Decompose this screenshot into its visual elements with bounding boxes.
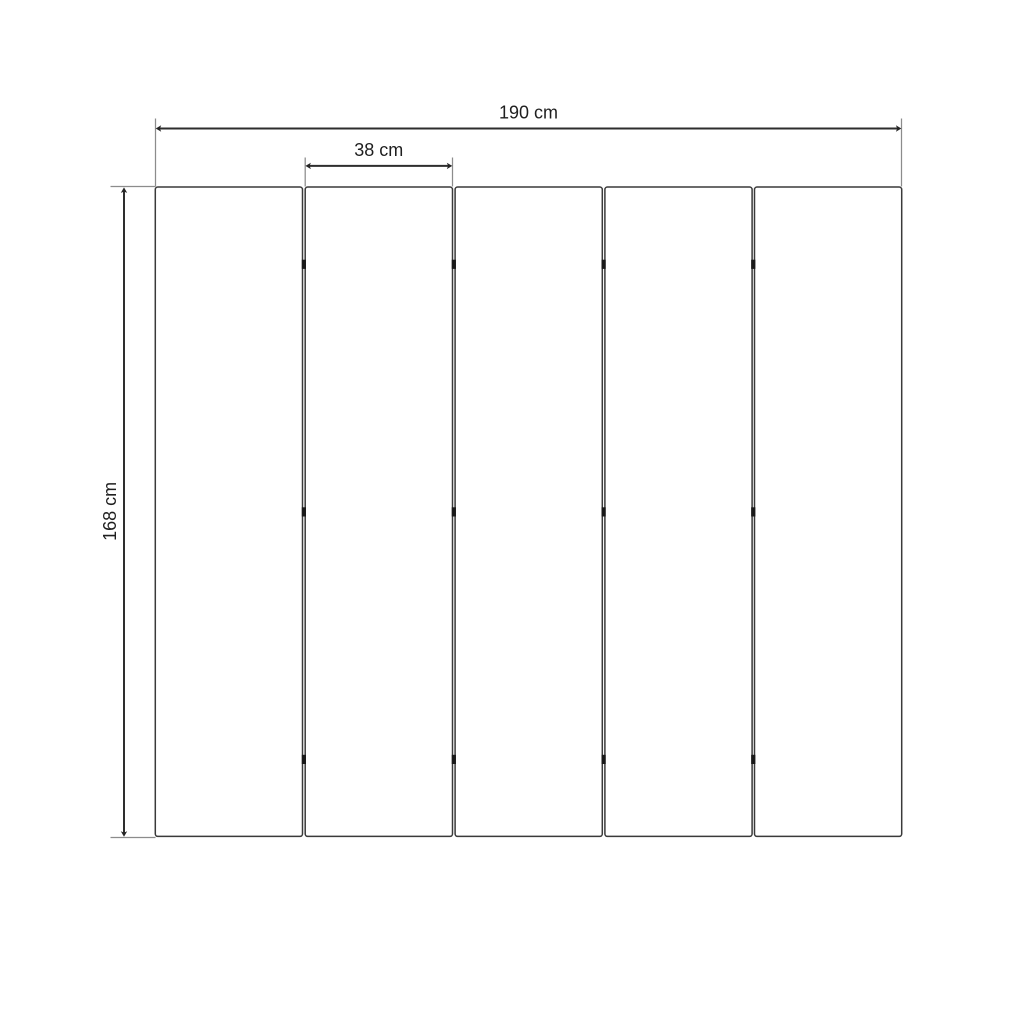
svg-text:190 cm: 190 cm <box>499 103 558 123</box>
svg-text:38 cm: 38 cm <box>354 140 403 160</box>
svg-text:168 cm: 168 cm <box>100 482 120 541</box>
